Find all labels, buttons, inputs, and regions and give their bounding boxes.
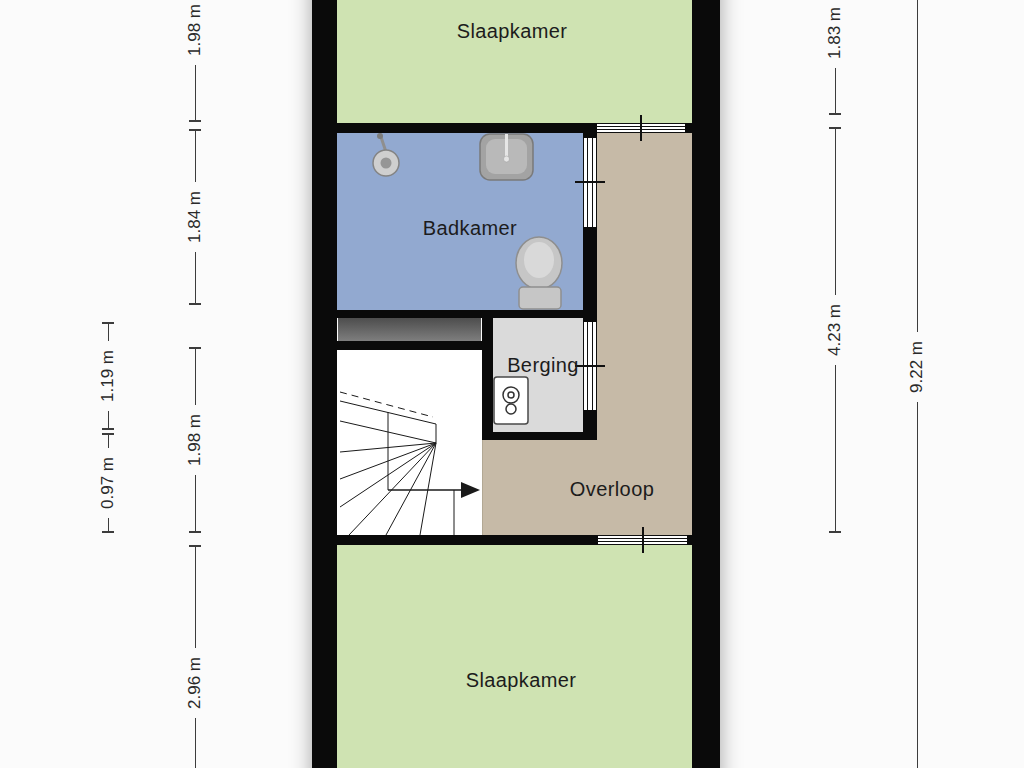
room-label-berging: Berging (507, 354, 579, 377)
dimension-bedroom-top-right: 1.83 m (828, 0, 842, 115)
room-overloop (597, 133, 692, 535)
door-swing-tick (642, 527, 644, 553)
door-swing-tick (640, 115, 642, 141)
dimension-overloop-lower: 0.97 m (101, 433, 115, 533)
wall-exterior-left (312, 0, 337, 768)
room-slaapkamer-top (337, 0, 692, 123)
floorplan-canvas: Slaapkamer Badkamer Berging Overloop Sla… (0, 0, 1024, 768)
room-slaapkamer-bottom (337, 545, 692, 768)
room-label-overloop: Overloop (570, 478, 654, 501)
dimension-berging: 1.19 m (101, 322, 115, 430)
door-swing-tick (575, 181, 605, 183)
wall-bathroom-bottom (337, 310, 597, 318)
room-label-slaapkamer-bottom: Slaapkamer (466, 669, 577, 692)
wall-berging-left (482, 318, 493, 440)
dimension-badkamer: 1.84 m (188, 129, 202, 305)
wall-exterior-right (692, 0, 720, 768)
dimension-bedroom-top: 1.98 m (188, 0, 202, 122)
stairwell (337, 350, 482, 535)
dimension-total-depth: 9.22 m (910, 0, 924, 768)
half-wall (338, 318, 481, 341)
wall-berging-bottom (482, 432, 597, 440)
room-label-badkamer: Badkamer (423, 217, 517, 240)
dimension-overloop: 4.23 m (828, 127, 842, 533)
dimension-stairwell: 1.98 m (188, 347, 202, 533)
door-swing-tick (575, 365, 605, 367)
wall-stairwell-top (337, 341, 482, 350)
dimension-bedroom-bottom: 2.96 m (188, 545, 202, 768)
room-label-slaapkamer-top: Slaapkamer (457, 20, 568, 43)
